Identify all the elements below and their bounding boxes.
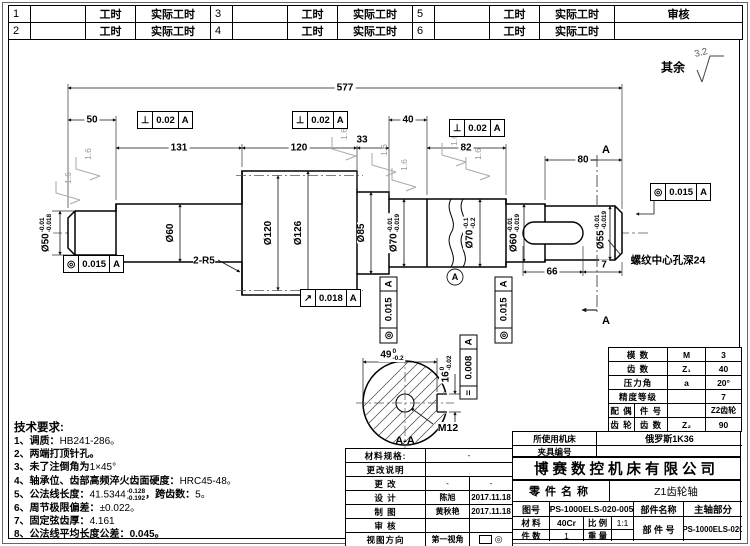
dim-49: 490-0.2 bbox=[378, 348, 405, 362]
weight-label: 重 量 bbox=[583, 529, 611, 541]
drawing-no-label: 图号 bbox=[513, 501, 549, 516]
gdt-perpendicularity-3: ⊥ 0.02 A bbox=[449, 119, 505, 137]
process-row-2: 2 工时 实际工时 4 工时 实际工时 6 工时 实际工时 bbox=[9, 23, 743, 40]
dim-40: 40 bbox=[400, 115, 415, 126]
hours-label: 工时 bbox=[490, 6, 540, 23]
gdt-perpendicularity-1: ⊥ 0.02 A bbox=[137, 111, 193, 129]
op-number: 5 bbox=[413, 6, 435, 23]
module-value: 3 bbox=[706, 348, 742, 362]
note-6: 6、周节极限偏差：±0.022。 bbox=[14, 502, 237, 515]
pressure-angle-label: 压力角 bbox=[609, 376, 668, 390]
design-date: 2017.11.18 bbox=[470, 491, 513, 505]
accuracy-grade-value: 7 bbox=[706, 390, 742, 404]
runout-icon: ↗ bbox=[301, 290, 316, 306]
note-3: 3、未了注倒角为1×45° bbox=[14, 461, 237, 474]
teeth-value: 40 bbox=[706, 362, 742, 376]
change-note-label: 更改说明 bbox=[346, 463, 426, 477]
gdt-symmetry-keyway: = 0.008 A bbox=[460, 335, 478, 400]
dia-label-126: Ø126 bbox=[294, 220, 304, 246]
scale-value: 1:1 bbox=[611, 516, 633, 529]
dia-label-70-bearing: Ø70-0.01-0.019 bbox=[387, 213, 401, 253]
process-hours-table: 1 工时 实际工时 3 工时 实际工时 5 工时 实际工时 审核 2 工时 实际… bbox=[8, 5, 743, 40]
qty-label: 件 数 bbox=[513, 529, 549, 541]
dia-label-120: Ø120 bbox=[264, 220, 274, 246]
op-number: 1 bbox=[9, 6, 31, 23]
symmetry-icon: = bbox=[461, 386, 477, 399]
mate-gear-label-1: 配 偶 bbox=[609, 404, 635, 418]
accuracy-grade-label: 精度等级 bbox=[609, 390, 668, 404]
part-name-label: 零件名称 bbox=[513, 481, 609, 501]
note-5: 5、公法线长度：41.5344-0.128-0.192，跨齿数：5。 bbox=[14, 488, 237, 502]
part-name-value: Z1齿轮轴 bbox=[609, 481, 742, 501]
review-label: 审核 bbox=[615, 6, 743, 23]
material-value: 40Cr bbox=[549, 516, 583, 529]
draft-name: 黄秋艳 bbox=[426, 505, 470, 519]
machine-used-value: 俄罗斯1K36 bbox=[596, 432, 742, 445]
change-label: 更 改 bbox=[346, 477, 426, 491]
gdt-perpendicularity-2: ⊥ 0.02 A bbox=[292, 111, 348, 129]
dim-80: 80 bbox=[575, 155, 590, 166]
concentricity-icon: ◎ bbox=[651, 184, 666, 200]
weight-value bbox=[611, 529, 633, 541]
dim-7: 7 bbox=[599, 260, 609, 271]
dim-131: 131 bbox=[169, 143, 190, 154]
concentricity-icon: ◎ bbox=[496, 327, 512, 342]
machine-info-block: 所使用机床 俄罗斯1K36 夹具编号 bbox=[512, 431, 741, 457]
hours-label: 工时 bbox=[288, 6, 338, 23]
projection-symbols: ◎ bbox=[470, 533, 513, 546]
note-7: 7、固定弦齿厚：4.161 bbox=[14, 515, 237, 528]
dia-label-85: Ø85 bbox=[357, 223, 367, 244]
gdt-concentricity-v1: ◎ 0.015 A bbox=[380, 277, 398, 344]
draft-date: 2017.11.18 bbox=[470, 505, 513, 519]
dia-label-70-thread: Ø70-0.1-0.2 bbox=[463, 216, 477, 249]
dim-overall-length: 577 bbox=[335, 83, 356, 94]
check-label: 审 核 bbox=[346, 519, 426, 533]
assembly-name-value: 主轴部分 bbox=[683, 501, 742, 516]
drawing-no-value: PS-1000ELS-020-005 bbox=[549, 501, 633, 516]
scale-label: 比 例 bbox=[583, 516, 611, 529]
notes-title: 技术要求: bbox=[14, 421, 237, 435]
mate-gear-label-2: 齿 轮 bbox=[609, 418, 635, 432]
mate-part-value: Z2齿轮 bbox=[706, 404, 742, 418]
design-name: 陈旭 bbox=[426, 491, 470, 505]
company-name: 博赛数控机床有限公司 bbox=[512, 457, 741, 480]
gdt-concentricity-right-end: ◎ 0.015 A bbox=[650, 183, 711, 201]
module-label: 模 数 bbox=[609, 348, 668, 362]
perpendicularity-icon: ⊥ bbox=[450, 120, 465, 136]
actual-hours-label: 实际工时 bbox=[540, 6, 615, 23]
rest-finish-label: 其余 bbox=[661, 59, 685, 76]
hours-label: 工时 bbox=[86, 6, 136, 23]
datum-a-label: A bbox=[452, 272, 459, 282]
dia-label-60: Ø60 bbox=[166, 223, 176, 244]
engineering-drawing-sheet: 1 工时 实际工时 3 工时 实际工时 5 工时 实际工时 审核 2 工时 实际… bbox=[0, 0, 750, 546]
finish-1-6: 1.6 bbox=[339, 128, 349, 140]
perpendicularity-icon: ⊥ bbox=[293, 112, 308, 128]
mate-teeth-label: 齿 数 bbox=[635, 418, 668, 432]
finish-1-6: 1.6 bbox=[63, 172, 73, 184]
fillet-note: 2-R5 bbox=[193, 256, 215, 267]
teeth-label: 齿 数 bbox=[609, 362, 668, 376]
projection-circle-icon: ◎ bbox=[495, 534, 503, 544]
qty-value: 1 bbox=[549, 529, 583, 541]
dim-16: 160-0.02 bbox=[439, 355, 453, 384]
note-4: 4、轴承位、齿部高频淬火齿面硬度：HRC45-48。 bbox=[14, 475, 237, 488]
gdt-concentricity-left: ◎ 0.015 A bbox=[63, 255, 124, 273]
op-number: 3 bbox=[211, 6, 233, 23]
assembly-name-label: 部件名称 bbox=[633, 501, 683, 516]
assembly-no-label: 部 件 号 bbox=[633, 516, 683, 541]
dia-label-60-right: Ø60-0.01-0.019 bbox=[507, 213, 521, 253]
actual-hours-label: 实际工时 bbox=[338, 6, 413, 23]
finish-1-6: 1.6 bbox=[83, 148, 93, 160]
gdt-concentricity-v2: ◎ 0.015 A bbox=[495, 277, 513, 344]
actual-hours-label: 实际工时 bbox=[136, 6, 211, 23]
finish-1-6: 1.6 bbox=[379, 144, 389, 156]
pressure-angle-value: 20° bbox=[706, 376, 742, 390]
dim-50: 50 bbox=[84, 115, 99, 126]
view-direction-label: 视图方向 bbox=[346, 533, 426, 546]
gear-parameter-table: 模 数 M 3 齿 数 Z₁ 40 压力角 a 20° 精度等级 7 配 偶 件… bbox=[608, 347, 742, 432]
section-arrow-label-top: A bbox=[602, 144, 610, 156]
dia-label-50: Ø50-0.01-0.018 bbox=[39, 213, 53, 253]
dim-120: 120 bbox=[289, 143, 310, 154]
part-title-block: 零件名称 Z1齿轮轴 图号 PS-1000ELS-020-005 部件名称 主轴… bbox=[512, 480, 741, 540]
section-arrow-label-bottom: A bbox=[602, 315, 610, 327]
technical-requirements: 技术要求: 1、调质：HB241-286。 2、两端打顶针孔。 3、未了注倒角为… bbox=[14, 421, 237, 541]
note-8: 8、公法线平均长度公差：0.045。 bbox=[14, 528, 237, 541]
concentricity-icon: ◎ bbox=[64, 256, 79, 272]
view-direction-value: 第一视角 bbox=[426, 533, 470, 546]
dim-82: 82 bbox=[458, 143, 473, 154]
section-title: A-A bbox=[395, 435, 415, 447]
concentricity-icon: ◎ bbox=[381, 327, 397, 342]
signoff-table: 材料规格: - 更改说明 更 改 - - 设 计 陈旭 2017.11.18 制… bbox=[345, 448, 513, 546]
machine-used-label: 所使用机床 bbox=[513, 432, 596, 445]
mate-part-label: 件 号 bbox=[635, 404, 668, 418]
perpendicularity-icon: ⊥ bbox=[138, 112, 153, 128]
mate-teeth-value: 90 bbox=[706, 418, 742, 432]
note-1: 1、调质：HB241-286。 bbox=[14, 435, 237, 448]
finish-1-6: 1.6 bbox=[399, 159, 409, 171]
first-angle-icon bbox=[479, 535, 492, 544]
dia-label-55: Ø55-0.01-0.019 bbox=[594, 210, 608, 250]
process-row-1: 1 工时 实际工时 3 工时 实际工时 5 工时 实际工时 审核 bbox=[9, 6, 743, 23]
center-hole-note: 螺纹中心孔深24 bbox=[631, 253, 706, 268]
draft-label: 制 图 bbox=[346, 505, 426, 519]
dim-33: 33 bbox=[354, 135, 369, 146]
finish-1-6: 1.6 bbox=[473, 148, 483, 160]
material-label: 材 料 bbox=[513, 516, 549, 529]
dim-66: 66 bbox=[544, 267, 559, 278]
assembly-no-value: PS-1000ELS-020 bbox=[683, 516, 742, 541]
thread-hole-label: M12 bbox=[438, 422, 458, 434]
material-spec-label: 材料规格: bbox=[346, 449, 426, 463]
design-label: 设 计 bbox=[346, 491, 426, 505]
note-2: 2、两端打顶针孔。 bbox=[14, 448, 237, 461]
gdt-runout: ↗ 0.018 A bbox=[300, 289, 361, 307]
